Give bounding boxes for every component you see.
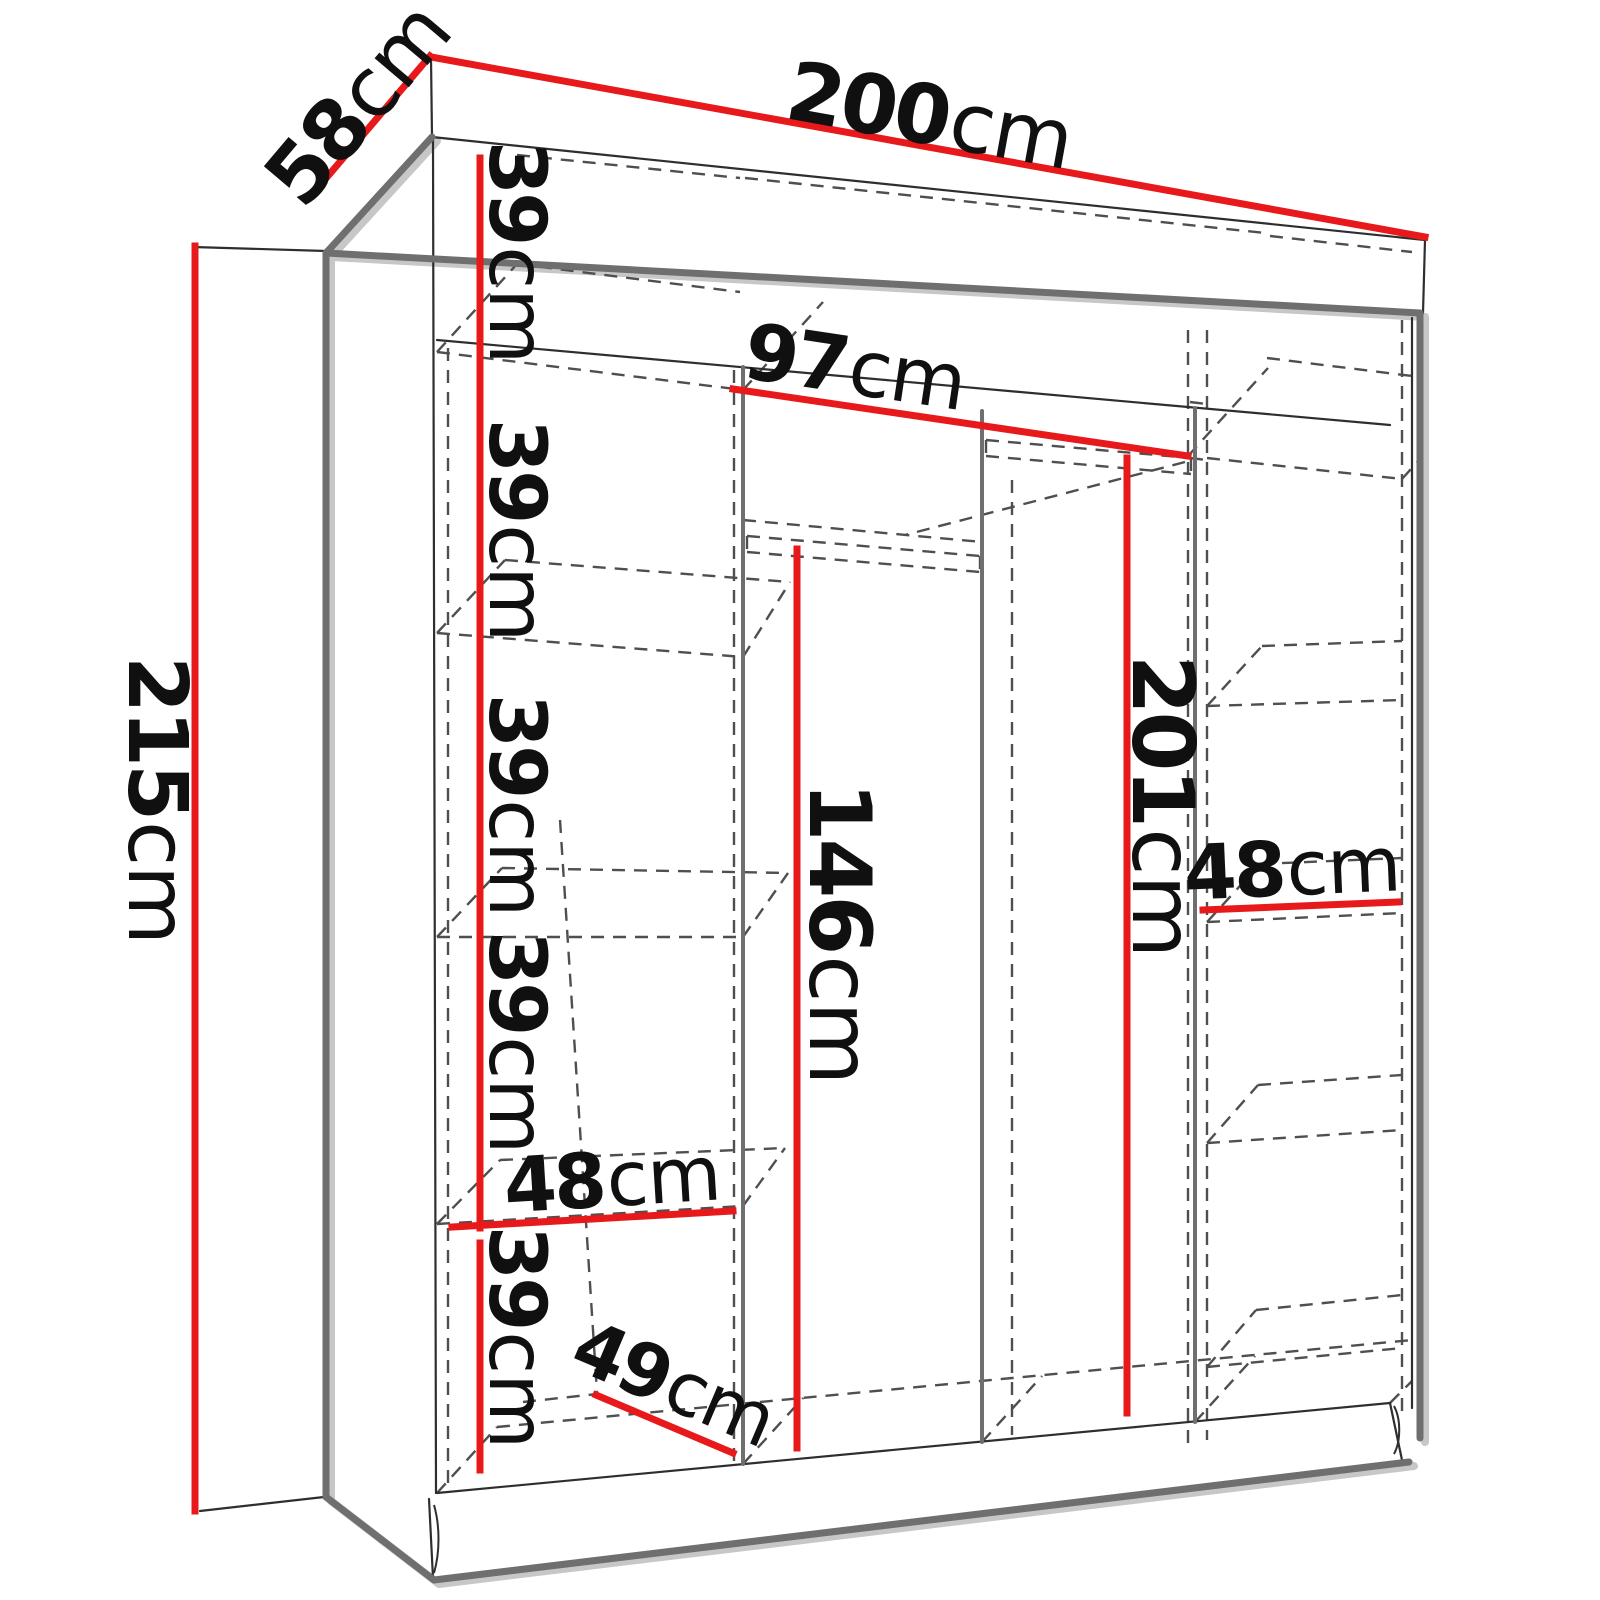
hidden-edge xyxy=(1207,458,1402,479)
edge-line xyxy=(433,140,436,1493)
hidden-edge xyxy=(1207,1348,1402,1367)
hidden-edge xyxy=(743,1148,785,1206)
edge-line xyxy=(1423,240,1425,313)
hidden-edge xyxy=(1270,236,1412,252)
dimension-unit: cm xyxy=(843,323,972,429)
dimension-value: 39 xyxy=(471,694,561,797)
dimension-label-overall-width: 200cm xyxy=(780,44,1080,189)
dimension-label-usable-depth: 49cm xyxy=(560,1303,788,1465)
dimension-label-shelf-gap-2: 39cm xyxy=(471,419,561,641)
dimension-unit: cm xyxy=(471,1036,561,1153)
hidden-edge xyxy=(1262,641,1402,646)
dimension-unit: cm xyxy=(471,799,561,916)
dimension-label-shelf-gap-3: 39cm xyxy=(471,694,561,916)
dimension-label-left-column-width: 48cm xyxy=(501,1128,723,1230)
hidden-edge xyxy=(747,552,980,572)
dimension-unit: cm xyxy=(471,1331,561,1448)
dimension-value: 215 xyxy=(110,656,205,818)
shadow-line xyxy=(439,1466,1414,1584)
dimension-unit: cm xyxy=(604,1128,723,1224)
hidden-edge xyxy=(560,820,597,1392)
dimension-value: 39 xyxy=(471,419,561,522)
hidden-edge xyxy=(745,178,1265,233)
carcass-line xyxy=(326,1497,434,1580)
diagram-page: 200cm58cm215cm39cm39cm39cm39cm39cm97cm20… xyxy=(0,0,1600,1600)
hidden-edge xyxy=(743,582,790,657)
dimension-unit: cm xyxy=(110,821,205,944)
dimension-value: 39 xyxy=(471,141,561,244)
edge-line xyxy=(429,1499,433,1578)
dimension-value: 201 xyxy=(1112,655,1212,826)
edge-line xyxy=(193,247,326,251)
dimension-label-short-hanging-height: 146cm xyxy=(789,782,889,1085)
hidden-edge xyxy=(1256,1295,1402,1310)
dimension-value: 200 xyxy=(780,44,957,166)
dimension-value: 39 xyxy=(471,1226,561,1329)
dimension-unit: cm xyxy=(1285,819,1403,913)
hidden-edge xyxy=(743,873,788,937)
dimension-label-overall-depth: 58cm xyxy=(246,0,470,224)
dimension-label-right-column-width: 48cm xyxy=(1182,819,1402,917)
hidden-edge xyxy=(1267,358,1420,377)
hidden-edge xyxy=(1258,1075,1402,1085)
hidden-edge xyxy=(1207,1310,1256,1367)
dimension-value: 39 xyxy=(471,931,561,1034)
dimension-value: 97 xyxy=(738,307,853,411)
hidden-edge xyxy=(1190,458,1207,460)
dimension-value: 146 xyxy=(789,782,889,953)
dimension-unit: cm xyxy=(471,524,561,641)
hidden-edge xyxy=(986,456,1191,474)
dimension-label-shelf-gap-1: 39cm xyxy=(471,141,561,363)
hidden-edge xyxy=(437,1160,500,1224)
hidden-edge xyxy=(1207,646,1262,706)
dimension-value: 48 xyxy=(501,1135,606,1230)
hidden-edge xyxy=(1195,1356,1255,1422)
hidden-edge xyxy=(1207,1085,1258,1143)
wardrobe-dimension-diagram: 200cm58cm215cm39cm39cm39cm39cm39cm97cm20… xyxy=(0,0,1600,1600)
dimension-unit: cm xyxy=(942,73,1080,188)
dimension-unit: cm xyxy=(789,955,889,1084)
dimension-unit: cm xyxy=(471,246,561,363)
dimension-label-middle-width: 97cm xyxy=(738,307,971,429)
edge-line xyxy=(200,1497,324,1511)
dimension-labels: 200cm58cm215cm39cm39cm39cm39cm39cm97cm20… xyxy=(110,0,1403,1465)
dimension-value: 48 xyxy=(1182,824,1286,917)
hidden-edge xyxy=(1207,1130,1402,1143)
foot-detail xyxy=(434,1505,439,1573)
dimension-label-overall-height: 215cm xyxy=(110,656,205,944)
hidden-edge xyxy=(905,462,1185,535)
dimension-label-shelf-gap-4: 39cm xyxy=(471,931,561,1153)
dimension-label-shelf-gap-5: 39cm xyxy=(471,1226,561,1448)
hidden-edge xyxy=(1190,402,1207,404)
hidden-edge xyxy=(1207,700,1402,706)
